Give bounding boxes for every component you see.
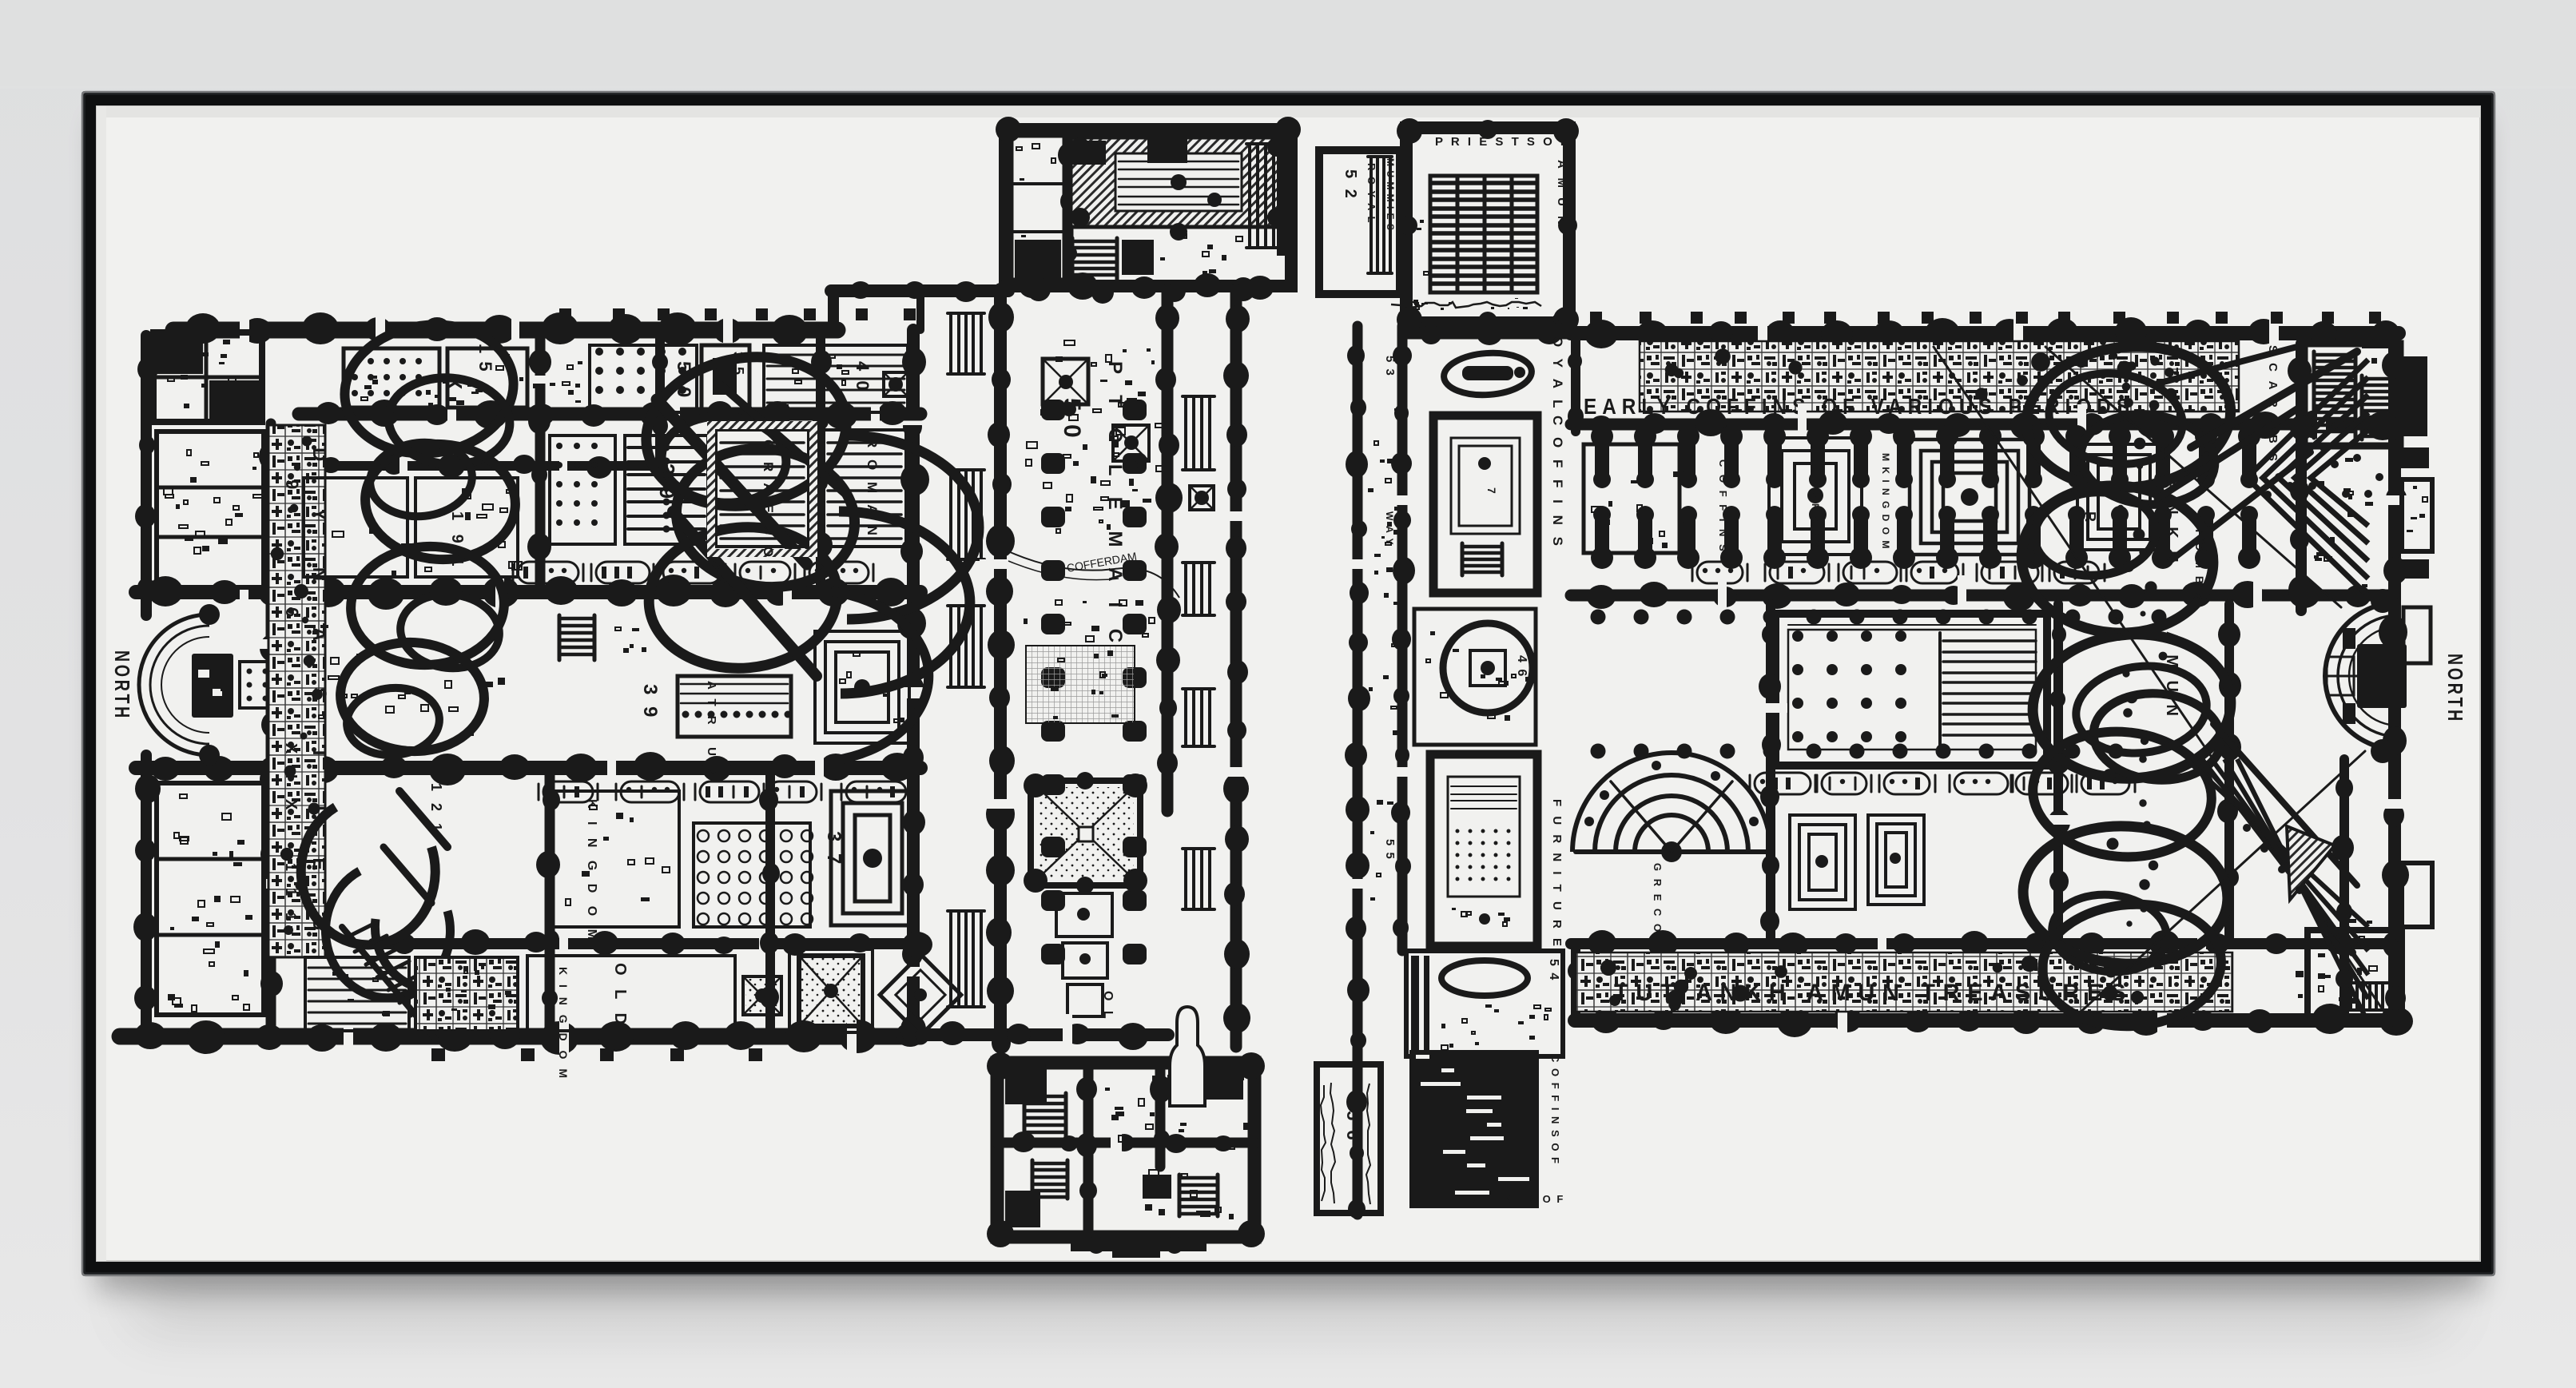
svg-text:1 2 1: 1 2 1 bbox=[428, 783, 444, 835]
svg-text:P R I E S T S O F: P R I E S T S O F bbox=[1435, 135, 1570, 149]
svg-text:X I X: X I X bbox=[282, 743, 300, 817]
svg-text:P R I E S T S O F: P R I E S T S O F bbox=[1456, 1193, 1564, 1205]
svg-text:1 5: 1 5 bbox=[475, 344, 495, 373]
svg-text:A T R I U M: A T R I U M bbox=[705, 681, 718, 779]
svg-text:5 6: 5 6 bbox=[1343, 1111, 1363, 1143]
svg-text:5 3: 5 3 bbox=[1383, 356, 1397, 377]
svg-text:NORTH: NORTH bbox=[110, 650, 134, 721]
svg-text:6: 6 bbox=[282, 607, 302, 618]
svg-text:X: X bbox=[443, 376, 467, 391]
svg-text:M K I N G D O M: M K I N G D O M bbox=[1880, 453, 1891, 550]
svg-text:5 0: 5 0 bbox=[1059, 398, 1085, 441]
svg-text:R O M A N: R O M A N bbox=[865, 438, 880, 539]
svg-text:O L D: O L D bbox=[611, 963, 629, 1029]
svg-text:W A Y: W A Y bbox=[1384, 511, 1395, 547]
svg-text:G R E C O: G R E C O bbox=[1652, 863, 1664, 934]
svg-text:5 5: 5 5 bbox=[1383, 839, 1397, 861]
svg-text:1 9 1: 1 9 1 bbox=[448, 511, 466, 571]
svg-text:A M U N: A M U N bbox=[1555, 160, 1568, 228]
svg-text:5 4: 5 4 bbox=[1547, 959, 1560, 981]
svg-text:R O Y A L: R O Y A L bbox=[1550, 315, 1565, 412]
svg-text:NORTH: NORTH bbox=[2443, 654, 2467, 724]
svg-text:4 0: 4 0 bbox=[853, 361, 873, 393]
svg-text:3 9: 3 9 bbox=[639, 684, 661, 720]
svg-text:K I N G D O M: K I N G D O M bbox=[557, 967, 570, 1081]
svg-text:C O F F I N S: C O F F I N S bbox=[1550, 416, 1565, 550]
svg-text:C O F F I N S: C O F F I N S bbox=[1717, 459, 1729, 554]
svg-text:5 2: 5 2 bbox=[1342, 169, 1359, 201]
svg-text:F U R N I T U R E: F U R N I T U R E bbox=[1550, 799, 1564, 949]
svg-text:2 9: 2 9 bbox=[655, 463, 679, 502]
svg-text:9: 9 bbox=[282, 479, 302, 491]
svg-text:C O F F I N S O F: C O F F I N S O F bbox=[1549, 1055, 1561, 1165]
svg-text:7: 7 bbox=[1485, 487, 1498, 495]
svg-text:D Y N A S T I E S: D Y N A S T I E S bbox=[308, 447, 330, 951]
svg-text:F U N E R A R Y: F U N E R A R Y bbox=[1810, 454, 1821, 549]
svg-text:R: R bbox=[2082, 511, 2098, 523]
svg-text:G R A E C O: G R A E C O bbox=[761, 439, 776, 561]
svg-text:4 6: 4 6 bbox=[1515, 655, 1529, 678]
